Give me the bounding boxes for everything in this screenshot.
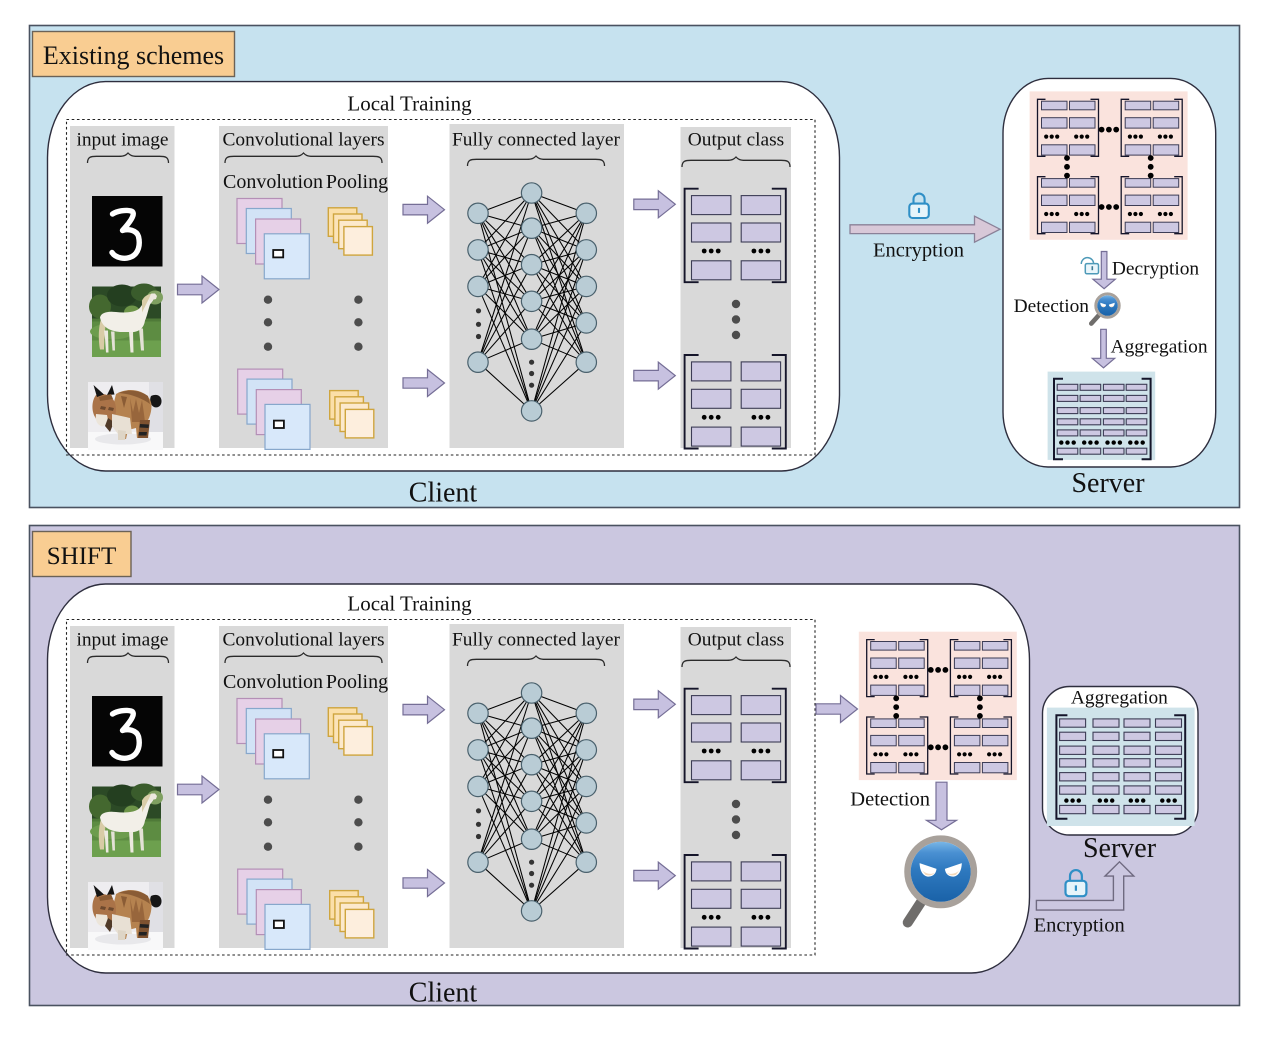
svg-text:Aggregation: Aggregation <box>1111 336 1208 357</box>
svg-text:Server: Server <box>1071 468 1145 499</box>
svg-text:Convolutional layers: Convolutional layers <box>222 130 384 151</box>
svg-text:Encryption: Encryption <box>873 240 964 262</box>
svg-text:Aggregation: Aggregation <box>1071 688 1168 709</box>
svg-text:Fully connected layer: Fully connected layer <box>452 130 621 151</box>
svg-text:Encryption: Encryption <box>1034 915 1125 937</box>
svg-text:SHIFT: SHIFT <box>47 543 116 570</box>
svg-text:Pooling: Pooling <box>326 171 388 193</box>
svg-text:Decryption: Decryption <box>1112 258 1200 279</box>
svg-text:input image: input image <box>76 130 168 151</box>
svg-text:Local Training: Local Training <box>347 92 472 116</box>
svg-text:Output class: Output class <box>688 130 784 151</box>
svg-text:Detection: Detection <box>1014 296 1090 317</box>
svg-text:Convolution: Convolution <box>223 171 323 193</box>
svg-text:Detection: Detection <box>850 789 930 811</box>
svg-text:Server: Server <box>1083 833 1157 864</box>
svg-text:Existing schemes: Existing schemes <box>43 41 224 70</box>
svg-text:Client: Client <box>409 478 478 509</box>
